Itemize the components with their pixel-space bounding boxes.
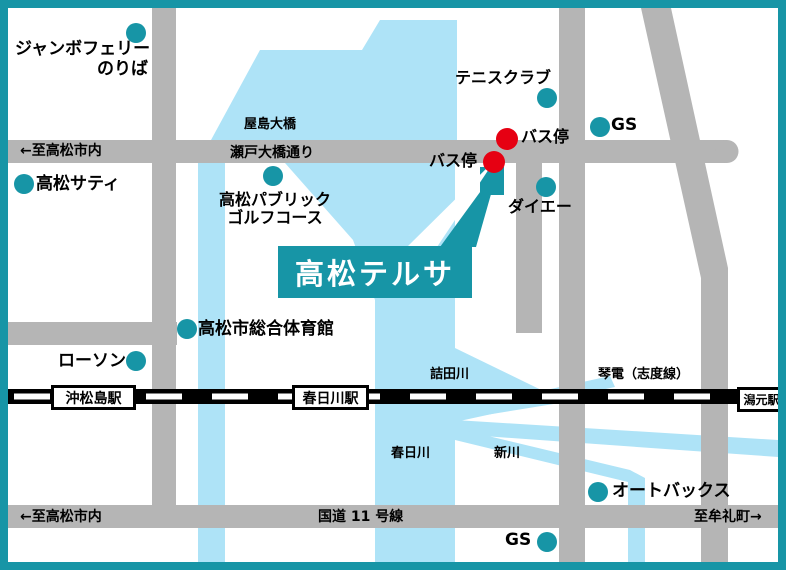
route11-label: 国道 11 号線 xyxy=(318,509,403,525)
daiei-dot-icon xyxy=(536,177,556,197)
saty-dot-icon xyxy=(14,174,34,194)
terrsa-callout-label: 高松テルサ xyxy=(295,251,455,293)
tsumetagawa-label: 詰田川 xyxy=(430,368,469,383)
road-seto-ohashi-cap xyxy=(716,140,739,163)
gs-top-dot-icon xyxy=(590,117,610,137)
golf-dot-icon xyxy=(263,166,283,186)
to-takamatsu-top-label: ←至高松市内 xyxy=(20,143,102,159)
terrsa-callout: 高松テルサ xyxy=(278,246,472,298)
gym-label: 高松市総合体育館 xyxy=(198,320,334,340)
bus-stop-upper-dot-icon xyxy=(496,128,518,150)
station-katamoto: 潟元駅 xyxy=(737,387,786,412)
lawson-dot-icon xyxy=(126,351,146,371)
kasugagawa-label: 春日川 xyxy=(391,447,430,462)
saty-label: 高松サティ xyxy=(36,175,120,195)
jumbo-ferry-label: ジャンボフェリー のりば xyxy=(15,40,148,79)
bus-stop-upper-label: バス停 xyxy=(521,128,569,146)
road-diagonal-east xyxy=(641,8,728,562)
takamatsu-terrsa-access-map: 高松テルサ ジャンボフェリー のりば 高松サティ ←至高松市内 屋島大橋 瀬戸大… xyxy=(0,0,786,570)
road-vertical-center xyxy=(559,8,585,562)
station-kasugagawa: 春日川駅 xyxy=(292,385,369,410)
road-seto-ohashi xyxy=(8,140,727,163)
daiei-label: ダイエー xyxy=(508,198,572,216)
gym-dot-icon xyxy=(177,319,197,339)
gs-top-label: GS xyxy=(611,116,637,136)
shinkawa-label: 新川 xyxy=(494,447,520,462)
gs-bottom-label: GS xyxy=(505,531,531,551)
bus-stop-lower-label: バス停 xyxy=(429,152,477,170)
lawson-label: ローソン xyxy=(58,352,126,372)
gs-bottom-dot-icon xyxy=(537,532,557,552)
autobacs-label: オートバックス xyxy=(612,482,731,502)
road-vertical-west xyxy=(152,8,176,528)
road-west-short xyxy=(8,322,177,345)
yashima-bridge-label: 屋島大橋 xyxy=(244,118,296,133)
kotoden-line-label: 琴電（志度線） xyxy=(598,368,689,383)
bus-stop-lower-dot-icon xyxy=(483,151,505,173)
to-takamatsu-bottom-label: ←至高松市内 xyxy=(20,509,102,525)
tennis-dot-icon xyxy=(537,88,557,108)
golf-course-label: 高松パブリック ゴルフコース xyxy=(205,191,345,228)
seto-ohashi-label: 瀬戸大橋通り xyxy=(230,145,314,161)
tennis-club-label: テニスクラブ xyxy=(455,69,551,87)
to-mure-label: 至牟礼町→ xyxy=(694,509,762,525)
station-okimatsushima: 沖松島駅 xyxy=(51,385,136,410)
autobacs-dot-icon xyxy=(588,482,608,502)
